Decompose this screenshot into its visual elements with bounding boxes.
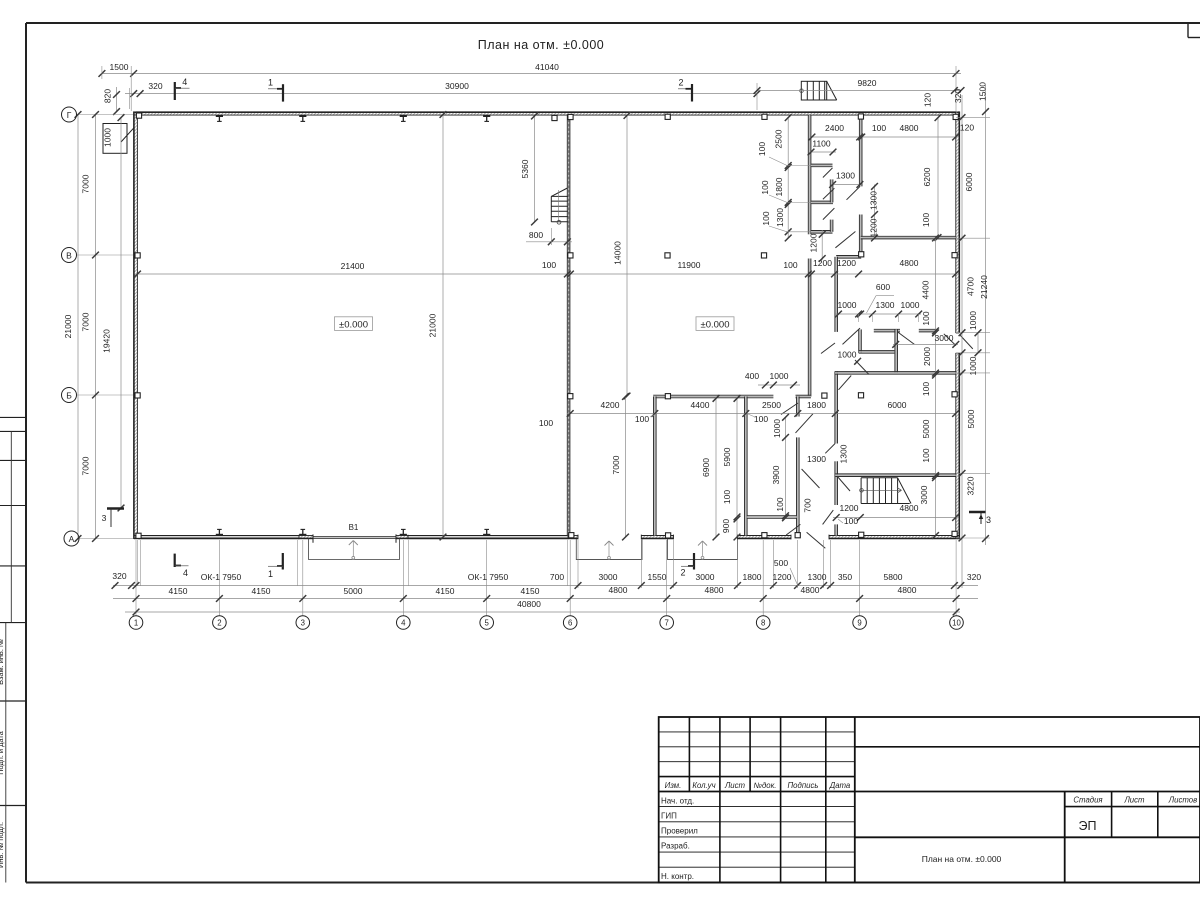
svg-text:100: 100: [635, 414, 649, 424]
svg-text:Взам. инв. №: Взам. инв. №: [0, 639, 5, 685]
svg-text:5360: 5360: [520, 159, 530, 178]
svg-text:500: 500: [774, 558, 788, 568]
svg-text:ОК-1 7950: ОК-1 7950: [201, 572, 242, 582]
svg-text:700: 700: [803, 498, 813, 512]
svg-text:1500: 1500: [978, 82, 988, 101]
svg-text:9820: 9820: [858, 78, 877, 88]
svg-text:100: 100: [921, 448, 931, 462]
svg-text:100: 100: [921, 213, 931, 227]
svg-text:100: 100: [775, 497, 785, 511]
svg-text:1200: 1200: [837, 258, 856, 268]
svg-text:1550: 1550: [648, 572, 667, 582]
svg-text:41040: 41040: [535, 62, 559, 72]
svg-text:3000: 3000: [919, 485, 929, 504]
svg-text:Лист: Лист: [724, 781, 746, 790]
svg-text:4800: 4800: [801, 585, 820, 595]
svg-text:100: 100: [921, 382, 931, 396]
svg-text:1800: 1800: [743, 572, 762, 582]
svg-text:100: 100: [761, 211, 771, 225]
svg-text:7000: 7000: [81, 456, 91, 475]
svg-text:5000: 5000: [344, 586, 363, 596]
svg-text:6000: 6000: [888, 400, 907, 410]
svg-text:2: 2: [680, 568, 685, 578]
svg-text:3000: 3000: [935, 333, 954, 343]
svg-text:5000: 5000: [966, 409, 976, 428]
svg-text:2: 2: [678, 78, 683, 88]
svg-text:4200: 4200: [601, 400, 620, 410]
svg-text:1000: 1000: [838, 300, 857, 310]
svg-text:В1: В1: [349, 523, 359, 532]
svg-text:4800: 4800: [609, 585, 628, 595]
svg-text:1200: 1200: [813, 258, 832, 268]
svg-text:Г: Г: [67, 110, 72, 120]
svg-text:3: 3: [102, 513, 107, 523]
svg-text:Б: Б: [66, 390, 72, 400]
svg-text:1300: 1300: [808, 572, 827, 582]
svg-text:План на отм. ±0.000: План на отм. ±0.000: [478, 38, 605, 52]
svg-text:21000: 21000: [63, 314, 73, 338]
svg-text:400: 400: [745, 371, 759, 381]
svg-text:100: 100: [844, 516, 858, 526]
svg-text:7000: 7000: [81, 174, 91, 193]
svg-text:11900: 11900: [677, 260, 700, 270]
svg-text:2: 2: [217, 619, 221, 628]
svg-text:4800: 4800: [900, 503, 919, 513]
svg-text:1500: 1500: [110, 62, 129, 72]
svg-text:3220: 3220: [966, 476, 976, 495]
svg-text:1100: 1100: [812, 139, 831, 149]
svg-text:1300: 1300: [839, 444, 849, 463]
svg-text:2400: 2400: [825, 123, 844, 133]
svg-text:Инв. № подл.: Инв. № подл.: [0, 822, 5, 868]
svg-text:900: 900: [721, 519, 731, 533]
svg-text:Изм.: Изм.: [665, 781, 682, 790]
svg-text:1000: 1000: [838, 350, 857, 360]
svg-text:1800: 1800: [807, 400, 826, 410]
svg-text:14000: 14000: [613, 241, 623, 265]
svg-text:700: 700: [550, 572, 564, 582]
svg-text:6200: 6200: [922, 167, 932, 186]
svg-text:4800: 4800: [705, 585, 724, 595]
svg-text:21000: 21000: [428, 313, 438, 337]
svg-text:1000: 1000: [103, 128, 113, 147]
svg-text:100: 100: [542, 260, 556, 270]
svg-text:800: 800: [529, 230, 543, 240]
svg-text:1: 1: [134, 619, 138, 628]
svg-text:Проверил: Проверил: [661, 827, 698, 836]
svg-text:1800: 1800: [774, 177, 784, 196]
svg-text:21240: 21240: [979, 275, 989, 299]
svg-text:5800: 5800: [884, 572, 903, 582]
svg-text:8: 8: [761, 619, 765, 628]
svg-text:100: 100: [757, 142, 767, 156]
svg-text:6: 6: [568, 619, 572, 628]
svg-text:6900: 6900: [701, 458, 711, 477]
svg-text:4400: 4400: [691, 400, 710, 410]
svg-text:320: 320: [967, 572, 981, 582]
svg-text:1300: 1300: [876, 300, 895, 310]
svg-text:350: 350: [838, 572, 852, 582]
svg-text:5000: 5000: [921, 419, 931, 438]
svg-text:3900: 3900: [771, 465, 781, 484]
svg-text:120: 120: [960, 123, 974, 133]
svg-text:7000: 7000: [611, 455, 621, 474]
svg-text:1200: 1200: [840, 503, 859, 513]
svg-text:3: 3: [301, 619, 305, 628]
svg-text:Н. контр.: Н. контр.: [661, 872, 694, 881]
svg-text:100: 100: [921, 311, 931, 325]
svg-text:ЭП: ЭП: [1079, 819, 1097, 833]
svg-text:4: 4: [183, 568, 188, 578]
svg-text:ОК-1 7950: ОК-1 7950: [468, 572, 509, 582]
svg-text:100: 100: [722, 490, 732, 504]
svg-text:4150: 4150: [169, 586, 188, 596]
svg-text:1300: 1300: [869, 191, 879, 210]
svg-text:100: 100: [872, 123, 886, 133]
svg-text:21400: 21400: [341, 261, 365, 271]
svg-text:Разраб.: Разраб.: [661, 842, 690, 851]
svg-text:1300: 1300: [836, 171, 855, 181]
svg-text:3000: 3000: [696, 572, 715, 582]
svg-text:1000: 1000: [968, 356, 978, 375]
svg-text:600: 600: [876, 282, 890, 292]
svg-text:4700: 4700: [966, 277, 976, 296]
svg-text:40800: 40800: [517, 599, 541, 609]
svg-text:4400: 4400: [921, 280, 931, 299]
svg-text:30900: 30900: [445, 81, 469, 91]
svg-text:820: 820: [103, 89, 113, 103]
svg-text:5900: 5900: [722, 447, 732, 466]
svg-text:Листов: Листов: [1168, 796, 1197, 805]
svg-text:Лист: Лист: [1123, 796, 1145, 805]
svg-text:3000: 3000: [599, 572, 618, 582]
svg-text:19420: 19420: [102, 329, 112, 353]
svg-text:7: 7: [665, 619, 669, 628]
svg-text:4150: 4150: [521, 586, 540, 596]
svg-text:±0.000: ±0.000: [339, 319, 368, 330]
svg-text:А: А: [69, 534, 75, 544]
svg-text:4800: 4800: [898, 585, 917, 595]
svg-text:4: 4: [182, 77, 187, 87]
svg-text:Стадия: Стадия: [1073, 796, 1103, 805]
svg-text:120: 120: [923, 93, 933, 107]
svg-text:4150: 4150: [436, 586, 455, 596]
svg-text:1000: 1000: [901, 300, 920, 310]
svg-text:План на отм. ±0.000: План на отм. ±0.000: [922, 854, 1002, 864]
svg-text:5: 5: [485, 619, 490, 628]
svg-text:320: 320: [148, 81, 162, 91]
svg-text:320: 320: [112, 571, 126, 581]
svg-text:2000: 2000: [922, 347, 932, 366]
svg-text:4: 4: [401, 619, 406, 628]
svg-text:Нач. отд.: Нач. отд.: [661, 797, 694, 806]
svg-text:7000: 7000: [81, 312, 91, 331]
svg-text:4800: 4800: [900, 258, 919, 268]
svg-text:В: В: [66, 250, 72, 260]
svg-text:1200: 1200: [773, 572, 792, 582]
svg-text:2500: 2500: [774, 129, 784, 148]
svg-text:№док.: №док.: [754, 781, 777, 790]
svg-text:320: 320: [953, 89, 963, 103]
svg-text:1300: 1300: [775, 208, 785, 227]
svg-text:100: 100: [783, 260, 797, 270]
svg-text:1300: 1300: [807, 454, 826, 464]
svg-text:Подпись: Подпись: [788, 781, 819, 790]
svg-text:9: 9: [857, 619, 861, 628]
svg-text:100: 100: [760, 180, 770, 194]
svg-text:4800: 4800: [900, 123, 919, 133]
svg-text:1: 1: [268, 569, 273, 579]
svg-text:10: 10: [952, 619, 961, 628]
svg-text:1: 1: [268, 78, 273, 88]
svg-text:2500: 2500: [762, 400, 781, 410]
svg-text:1000: 1000: [968, 311, 978, 330]
svg-text:±0.000: ±0.000: [701, 319, 730, 330]
svg-text:100: 100: [539, 418, 553, 428]
svg-text:Подп. и дата: Подп. и дата: [0, 730, 5, 774]
svg-text:6000: 6000: [964, 172, 974, 191]
svg-text:3: 3: [986, 515, 991, 525]
svg-text:Дата: Дата: [829, 781, 851, 790]
svg-text:ГИП: ГИП: [661, 812, 677, 821]
svg-text:1200: 1200: [869, 218, 879, 237]
svg-text:100: 100: [754, 414, 768, 424]
svg-text:1000: 1000: [770, 371, 789, 381]
svg-text:1000: 1000: [772, 419, 782, 438]
svg-text:4150: 4150: [252, 586, 271, 596]
svg-text:Кол.уч: Кол.уч: [692, 781, 715, 790]
svg-text:1200: 1200: [809, 233, 819, 252]
